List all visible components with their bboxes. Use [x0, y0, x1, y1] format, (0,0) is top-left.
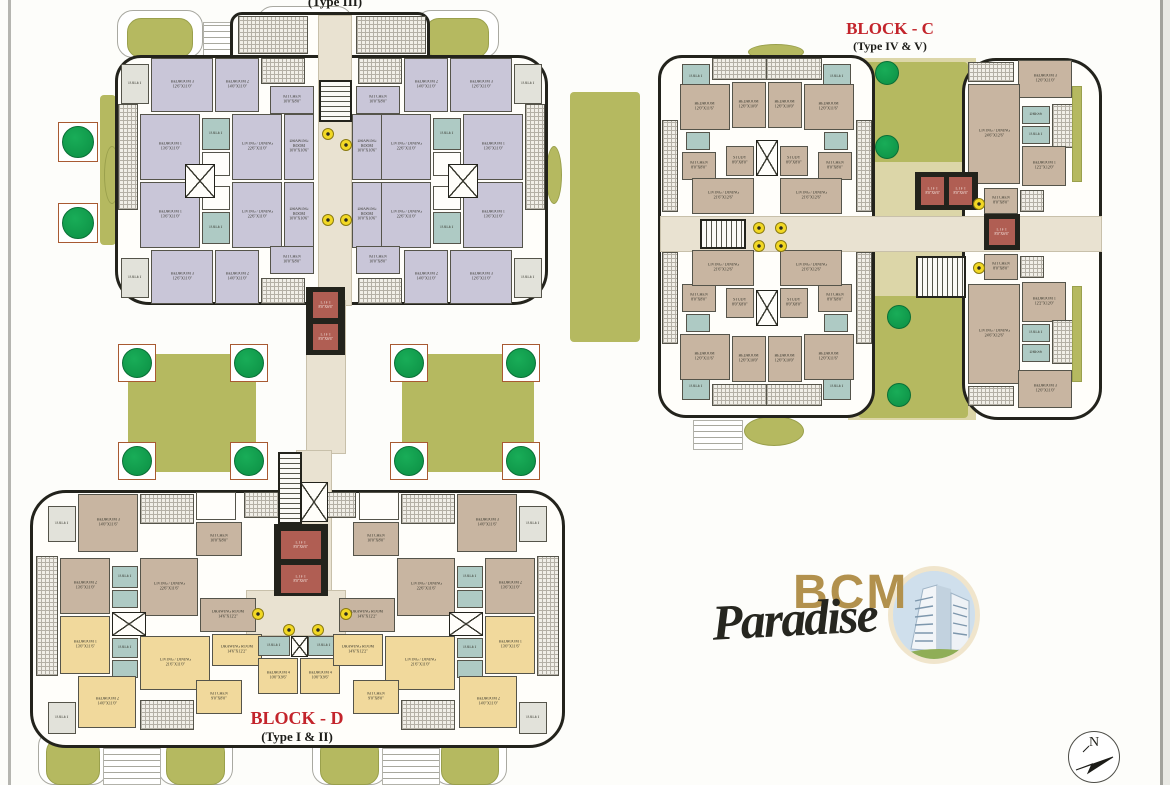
room-label: TOILET — [128, 276, 142, 281]
tree-icon — [234, 446, 264, 476]
room: BEDROOM 12'0"X11'6" — [680, 334, 730, 380]
room-label: DRAWING ROOM 10'0"X10'6" — [288, 140, 310, 154]
entry-marker-icon — [252, 608, 264, 620]
room-label: BEDROOM 3 12'0"X11'0" — [1033, 74, 1056, 83]
room — [712, 58, 768, 80]
room: BEDROOM 2 14'0"X11'0" — [215, 250, 259, 304]
room: TOILET — [202, 118, 230, 150]
room-label: LIVING / DINING 21'6"X12'6" — [795, 263, 826, 272]
room: TOILET — [1022, 126, 1050, 144]
room-label: BEDROOM 4 10'0"X9'6" — [308, 671, 331, 680]
room-label: DRAWING ROOM 10'0"X10'6" — [288, 208, 310, 222]
tree-icon — [62, 126, 94, 158]
duct-shaft — [449, 612, 483, 636]
room: BEDROOM 2 14'0"X11'0" — [404, 58, 448, 112]
tree-spot — [872, 58, 902, 88]
room: STUDY 8'0"X8'0" — [780, 288, 808, 318]
room: KITCHEN 10'0"X8'0" — [270, 246, 314, 274]
room: BEDROOM 1 13'0"X11'6" — [485, 616, 535, 674]
room: TOILET — [519, 506, 547, 542]
room: BEDROOM 2 13'6"X11'0" — [60, 558, 110, 614]
room-label: KITCHEN 10'0"X8'0" — [369, 255, 387, 264]
room: BEDROOM 12'0"X10'0" — [768, 336, 802, 382]
lift: L I F T 8'0"X6'6" — [988, 218, 1016, 246]
room-label: TOILET — [440, 226, 454, 231]
entry-marker-icon — [753, 240, 765, 252]
room: TOILET — [121, 64, 149, 104]
room: DRESS — [1022, 106, 1050, 124]
room: BEDROOM 12'0"X11'6" — [680, 84, 730, 130]
room: BEDROOM 12'0"X11'6" — [804, 84, 854, 130]
room — [261, 58, 305, 84]
floor-plan-canvas: (Type III) BLOCK - C (Type IV & V) BLOCK… — [0, 0, 1170, 785]
room-label: BEDROOM 3 14'0"X11'6" — [96, 518, 119, 527]
room: BEDROOM 4 10'0"X9'6" — [258, 658, 298, 694]
room — [358, 58, 402, 84]
room: TOILET — [457, 566, 483, 588]
room: BEDROOM 3 12'6"X11'0" — [151, 58, 213, 112]
room: DRAWING ROOM 14'6"X12'2" — [333, 634, 383, 666]
duct-shaft — [291, 636, 308, 657]
room-label: DRAWING ROOM 14'6"X12'2" — [342, 645, 374, 654]
duct-shaft — [756, 140, 778, 176]
room-label: BEDROOM 2 14'0"X11'0" — [225, 272, 248, 281]
room — [766, 58, 822, 80]
room: KITCHEN 8'0"X8'0" — [818, 284, 852, 312]
room — [401, 494, 455, 524]
lift-label: L I F T 8'0"X6'6" — [318, 301, 333, 309]
block-a-subtitle: (Type III) — [270, 0, 400, 10]
room-label: BEDROOM 2 14'0"X11'0" — [95, 697, 118, 706]
room: TOILET — [457, 638, 483, 658]
room: DRAWING ROOM 14'6"X12'2" — [212, 634, 262, 666]
room-label: LIVING / DINING 22'6"X11'0" — [241, 210, 272, 219]
tree-icon — [234, 348, 264, 378]
room-label: BEDROOM 12'0"X10'0" — [775, 354, 795, 363]
room-label: BEDROOM 12'0"X11'6" — [695, 352, 715, 361]
room: TOILET — [433, 212, 461, 244]
sheet-edge — [1163, 0, 1170, 785]
room-label: TOILET — [1029, 331, 1043, 336]
room-label: BEDROOM 12'0"X10'0" — [739, 354, 759, 363]
lift: L I F T 8'0"X6'6" — [312, 291, 339, 319]
room-label: KITCHEN 10'0"X8'0" — [283, 255, 301, 264]
room: KITCHEN 10'0"X8'0" — [353, 522, 399, 556]
room-label: BEDROOM 2 14'0"X11'0" — [225, 80, 248, 89]
room: KITCHEN 10'0"X8'0" — [196, 522, 242, 556]
room: KITCHEN 8'0"X8'0" — [682, 152, 716, 180]
room — [238, 16, 308, 54]
room — [856, 252, 872, 344]
room-label: BEDROOM 1 12'2"X12'0" — [1032, 161, 1055, 170]
room-label: BEDROOM 12'0"X11'6" — [819, 102, 839, 111]
room — [968, 62, 1014, 82]
room-label: LIVING / DINING 21'6"X12'6" — [707, 191, 738, 200]
lift: L I F T 8'0"X6'6" — [948, 176, 973, 206]
room — [824, 132, 848, 150]
room-label: TOILET — [209, 226, 223, 231]
room — [968, 386, 1014, 406]
room — [401, 700, 455, 730]
entry-marker-icon — [340, 608, 352, 620]
room: DRAWING ROOM 10'0"X10'6" — [352, 182, 382, 248]
room: BEDROOM 2 14'0"X11'0" — [459, 676, 517, 728]
room-label: DRAWING ROOM 14'6"X12'2" — [212, 610, 244, 619]
room-label: BEDROOM 3 12'6"X11'0" — [469, 80, 492, 89]
room: LIVING / DINING 21'6"X12'6" — [692, 250, 754, 286]
room: LIVING / DINING 22'6"X11'6" — [140, 558, 198, 616]
room-label: STUDY 8'0"X8'0" — [732, 156, 748, 165]
room-label: BEDROOM 2 13'6"X11'0" — [73, 581, 96, 590]
room — [359, 492, 399, 520]
room — [261, 278, 305, 304]
tree-planter-box — [230, 344, 268, 382]
room-label: LIVING / DINING 21'6"X12'6" — [795, 191, 826, 200]
duct-shaft — [756, 290, 778, 326]
room-label: TOILET — [128, 82, 142, 87]
block-c-subtitle: (Type IV & V) — [840, 39, 940, 54]
room-label: KITCHEN 8'0"X8'0" — [992, 262, 1010, 271]
room: KITCHEN 8'0"X8'0" — [984, 254, 1018, 280]
room — [196, 492, 236, 520]
entry-marker-icon — [340, 139, 352, 151]
room: BEDROOM 12'0"X11'6" — [804, 334, 854, 380]
lawn-area — [570, 92, 640, 342]
room-label: TOILET — [118, 575, 132, 580]
room-label: BEDROOM 12'0"X10'0" — [775, 100, 795, 109]
room: KITCHEN 8'0"X8'0" — [682, 284, 716, 312]
grass-bump — [744, 416, 804, 446]
room: TOILET — [514, 64, 542, 104]
lift-label: L I F T 8'0"X6'6" — [925, 187, 940, 195]
tree-icon — [62, 207, 94, 239]
room-label: BEDROOM 12'0"X11'6" — [819, 352, 839, 361]
room: LIVING / DINING 24'6"X12'6" — [968, 84, 1020, 184]
room-label: TOILET — [526, 522, 540, 527]
entry-marker-icon — [753, 222, 765, 234]
lift: L I F T 8'0"X6'6" — [312, 323, 339, 351]
lift-label: L I F T 8'0"X6'6" — [953, 187, 968, 195]
staircase — [916, 256, 966, 298]
room-label: BEDROOM 3 14'0"X11'6" — [475, 518, 498, 527]
tree-planter-box — [58, 122, 98, 162]
room: STUDY 8'0"X8'0" — [726, 288, 754, 318]
room: DRESS — [1022, 344, 1050, 362]
room: DRAWING ROOM 14'6"X12'2" — [200, 598, 256, 632]
entry-marker-icon — [775, 240, 787, 252]
room-label: TOILET — [463, 646, 477, 651]
room: LIVING / DINING 21'6"X12'6" — [780, 178, 842, 214]
room: BEDROOM 3 14'0"X11'6" — [78, 494, 138, 552]
room-label: BEDROOM 3 12'6"X11'0" — [170, 272, 193, 281]
room: KITCHEN 10'0"X8'0" — [270, 86, 314, 114]
room: BEDROOM 2 14'0"X11'0" — [404, 250, 448, 304]
room-label: DRESS — [1030, 351, 1042, 356]
room — [1020, 256, 1044, 278]
room-label: BEDROOM 3 12'6"X11'0" — [469, 272, 492, 281]
room-label: BEDROOM 2 14'0"X11'0" — [414, 272, 437, 281]
room — [457, 590, 483, 608]
tree-planter-box — [118, 442, 156, 480]
corridor — [318, 15, 352, 306]
room-label: BEDROOM 1 13'6"X11'0" — [158, 142, 181, 151]
tree-icon — [506, 446, 536, 476]
room-label: BEDROOM 2 14'0"X11'0" — [414, 80, 437, 89]
lift-label: L I F T 8'0"X6'6" — [995, 228, 1010, 236]
room — [1020, 190, 1044, 212]
room-label: BEDROOM 4 10'0"X9'6" — [266, 671, 289, 680]
tree-spot — [884, 380, 914, 410]
room-label: BEDROOM 12'0"X10'0" — [739, 100, 759, 109]
tree-planter-box — [390, 344, 428, 382]
room-label: STUDY 8'0"X8'0" — [786, 156, 802, 165]
room-label: LIVING / DINING 22'6"X11'0" — [390, 142, 421, 151]
room: KITCHEN 10'0"X8'0" — [356, 86, 400, 114]
room-label: BEDROOM 1 13'0"X11'6" — [73, 640, 96, 649]
room-label: BEDROOM 1 12'2"X12'0" — [1032, 297, 1055, 306]
room: BEDROOM 1 12'2"X12'0" — [1022, 282, 1066, 322]
room-label: BEDROOM 12'0"X11'6" — [695, 102, 715, 111]
room-label: TOILET — [1029, 133, 1043, 138]
tree-icon — [394, 348, 424, 378]
room-label: DRAWING ROOM 14'6"X12'2" — [221, 645, 253, 654]
room-label: KITCHEN 10'0"X8'0" — [367, 534, 385, 543]
room: BEDROOM 3 12'0"X11'0" — [1018, 370, 1072, 408]
room: LIVING / DINING 22'6"X11'0" — [232, 114, 282, 180]
entrance-steps — [103, 742, 161, 785]
room: TOILET — [48, 506, 76, 542]
entry-marker-icon — [340, 214, 352, 226]
room — [140, 700, 194, 730]
entry-marker-icon — [312, 624, 324, 636]
room — [712, 384, 768, 406]
room: TOILET — [1022, 324, 1050, 342]
room: LIVING / DINING 22'6"X11'0" — [381, 182, 431, 248]
room — [662, 120, 678, 212]
room: DRAWING ROOM 10'0"X10'6" — [284, 182, 314, 248]
room-label: TOILET — [830, 385, 844, 390]
room: LIVING / DINING 24'6"X12'6" — [968, 284, 1020, 384]
logo-paradise-text: Paradise — [711, 582, 934, 651]
room — [358, 278, 402, 304]
room: KITCHEN 9'0"X8'0" — [353, 680, 399, 714]
lift-label: L I F T 8'0"X6'6" — [294, 541, 309, 549]
room-label: TOILET — [830, 75, 844, 80]
room: BEDROOM 12'0"X10'0" — [732, 82, 766, 128]
room-label: BEDROOM 1 13'6"X11'0" — [481, 210, 504, 219]
room-label: KITCHEN 9'0"X8'0" — [210, 692, 228, 701]
room: KITCHEN 8'0"X8'0" — [818, 152, 852, 180]
room-label: LIVING / DINING 22'6"X11'0" — [241, 142, 272, 151]
tree-icon — [887, 305, 911, 329]
block-d-subtitle: (Type I & II) — [239, 729, 355, 745]
room-label: KITCHEN 8'0"X8'0" — [690, 161, 708, 170]
room-label: STUDY 8'0"X8'0" — [732, 298, 748, 307]
room-label: TOILET — [118, 646, 132, 651]
room-label: KITCHEN 8'0"X8'0" — [690, 293, 708, 302]
entry-marker-icon — [973, 198, 985, 210]
room: BEDROOM 12'0"X10'0" — [732, 336, 766, 382]
lift: L I F T 8'0"X6'6" — [280, 564, 322, 594]
room: BEDROOM 3 12'0"X11'0" — [1018, 60, 1072, 98]
room-label: DRAWING ROOM 10'0"X10'6" — [356, 140, 378, 154]
room: TOILET — [112, 638, 138, 658]
tree-planter-box — [390, 442, 428, 480]
entrance-steps — [693, 420, 743, 450]
room: LIVING / DINING 21'6"X12'6" — [780, 250, 842, 286]
room — [112, 590, 138, 608]
room — [686, 132, 710, 150]
tree-icon — [887, 383, 911, 407]
room: KITCHEN 8'0"X8'0" — [984, 188, 1018, 214]
room-label: BEDROOM 1 13'6"X11'0" — [158, 210, 181, 219]
north-arrow-icon — [1069, 732, 1121, 784]
room-label: TOILET — [267, 644, 281, 649]
room-label: KITCHEN 10'0"X8'0" — [369, 95, 387, 104]
room — [36, 556, 58, 676]
room: LIVING / DINING 22'6"X11'6" — [397, 558, 455, 616]
tree-icon — [394, 446, 424, 476]
duct-shaft — [300, 482, 328, 522]
tree-spot — [872, 132, 902, 162]
staircase — [319, 80, 352, 122]
room — [856, 120, 872, 212]
room — [1052, 104, 1074, 148]
room: BEDROOM 12'0"X10'0" — [768, 82, 802, 128]
room — [537, 556, 559, 676]
room: LIVING / DINING 22'6"X11'0" — [232, 182, 282, 248]
room-label: LIVING / DINING 24'6"X12'6" — [978, 329, 1009, 338]
room-label: KITCHEN 10'0"X8'0" — [210, 534, 228, 543]
tree-icon — [122, 446, 152, 476]
room-label: BEDROOM 1 13'0"X11'6" — [498, 640, 521, 649]
room: LIVING / DINING 22'6"X11'0" — [381, 114, 431, 180]
room-label: BEDROOM 2 13'6"X11'0" — [498, 581, 521, 590]
room-label: TOILET — [526, 716, 540, 721]
room — [525, 104, 545, 210]
room-label: KITCHEN 8'0"X8'0" — [826, 293, 844, 302]
room-label: KITCHEN 8'0"X8'0" — [992, 196, 1010, 205]
room: BEDROOM 2 14'0"X11'0" — [215, 58, 259, 112]
north-compass: N — [1068, 731, 1120, 783]
room-label: LIVING / DINING 21'6"X11'0" — [404, 658, 435, 667]
room-label: TOILET — [689, 75, 703, 80]
room — [686, 314, 710, 332]
room — [118, 104, 138, 210]
room-label: KITCHEN 9'0"X8'0" — [367, 692, 385, 701]
room-label: TOILET — [440, 132, 454, 137]
room-label: LIVING / DINING 24'6"X12'6" — [978, 129, 1009, 138]
room: TOILET — [48, 702, 76, 734]
tree-planter-box — [118, 344, 156, 382]
staircase — [278, 452, 302, 524]
block-c-title: BLOCK - C — [840, 19, 940, 39]
room: TOILET — [202, 212, 230, 244]
room: LIVING / DINING 21'6"X12'6" — [692, 178, 754, 214]
room: BEDROOM 3 14'0"X11'6" — [457, 494, 517, 552]
staircase — [700, 219, 746, 249]
duct-shaft — [112, 612, 146, 636]
tree-planter-box — [230, 442, 268, 480]
room-label: STUDY 8'0"X8'0" — [786, 298, 802, 307]
room-label: KITCHEN 8'0"X8'0" — [826, 161, 844, 170]
room — [1072, 286, 1082, 382]
room-label: LIVING / DINING 21'6"X11'0" — [159, 658, 190, 667]
block-d-title: BLOCK - D — [235, 708, 359, 729]
grass-bump — [546, 146, 562, 204]
sheet-edge — [8, 0, 11, 785]
entry-marker-icon — [283, 624, 295, 636]
room-label: BEDROOM 3 12'6"X11'0" — [170, 80, 193, 89]
room-label: LIVING / DINING 22'6"X11'0" — [390, 210, 421, 219]
tree-planter-box — [502, 344, 540, 382]
room — [824, 314, 848, 332]
lift-label: L I F T 8'0"X6'6" — [294, 575, 309, 583]
room-label: BEDROOM 3 12'0"X11'0" — [1033, 384, 1056, 393]
room: STUDY 8'0"X8'0" — [726, 146, 754, 176]
room: DRAWING ROOM 10'0"X10'6" — [284, 114, 314, 180]
room: TOILET — [514, 258, 542, 298]
room-label: LIVING / DINING 22'6"X11'6" — [410, 582, 441, 591]
room: KITCHEN 10'0"X8'0" — [356, 246, 400, 274]
lift: L I F T 8'0"X6'6" — [920, 176, 945, 206]
tree-icon — [875, 135, 899, 159]
entry-marker-icon — [775, 222, 787, 234]
lift-label: L I F T 8'0"X6'6" — [318, 333, 333, 341]
room — [1072, 86, 1082, 182]
room-label: TOILET — [209, 132, 223, 137]
room — [140, 494, 194, 524]
room: TOILET — [433, 118, 461, 150]
duct-shaft — [448, 164, 478, 198]
tree-spot — [884, 302, 914, 332]
room-label: TOILET — [55, 716, 69, 721]
room — [356, 16, 426, 54]
room — [662, 252, 678, 344]
room: STUDY 8'0"X8'0" — [780, 146, 808, 176]
room: TOILET — [519, 702, 547, 734]
entry-marker-icon — [322, 214, 334, 226]
room-label: LIVING / DINING 22'6"X11'6" — [153, 582, 184, 591]
entry-marker-icon — [322, 128, 334, 140]
room: BEDROOM 2 14'0"X11'0" — [78, 676, 136, 728]
room-label: TOILET — [55, 522, 69, 527]
room — [1052, 320, 1074, 364]
tree-planter-box — [58, 203, 98, 243]
tree-planter-box — [502, 442, 540, 480]
room: BEDROOM 3 12'6"X11'0" — [450, 250, 512, 304]
tree-icon — [122, 348, 152, 378]
room-label: DRAWING ROOM 10'0"X10'6" — [356, 208, 378, 222]
room: TOILET — [121, 258, 149, 298]
entrance-steps — [382, 746, 440, 785]
room-label: TOILET — [317, 644, 331, 649]
room: BEDROOM 3 12'6"X11'0" — [151, 250, 213, 304]
room: BEDROOM 1 12'2"X12'0" — [1022, 146, 1066, 186]
lift: L I F T 8'0"X6'6" — [280, 530, 322, 560]
room-label: TOILET — [463, 575, 477, 580]
room-label: TOILET — [521, 276, 535, 281]
room: BEDROOM 3 12'6"X11'0" — [450, 58, 512, 112]
room — [766, 384, 822, 406]
tree-icon — [506, 348, 536, 378]
room: TOILET — [112, 566, 138, 588]
room: TOILET — [258, 636, 290, 656]
room-label: DRESS — [1030, 113, 1042, 118]
room-label: TOILET — [521, 82, 535, 87]
entry-marker-icon — [973, 262, 985, 274]
tree-icon — [875, 61, 899, 85]
